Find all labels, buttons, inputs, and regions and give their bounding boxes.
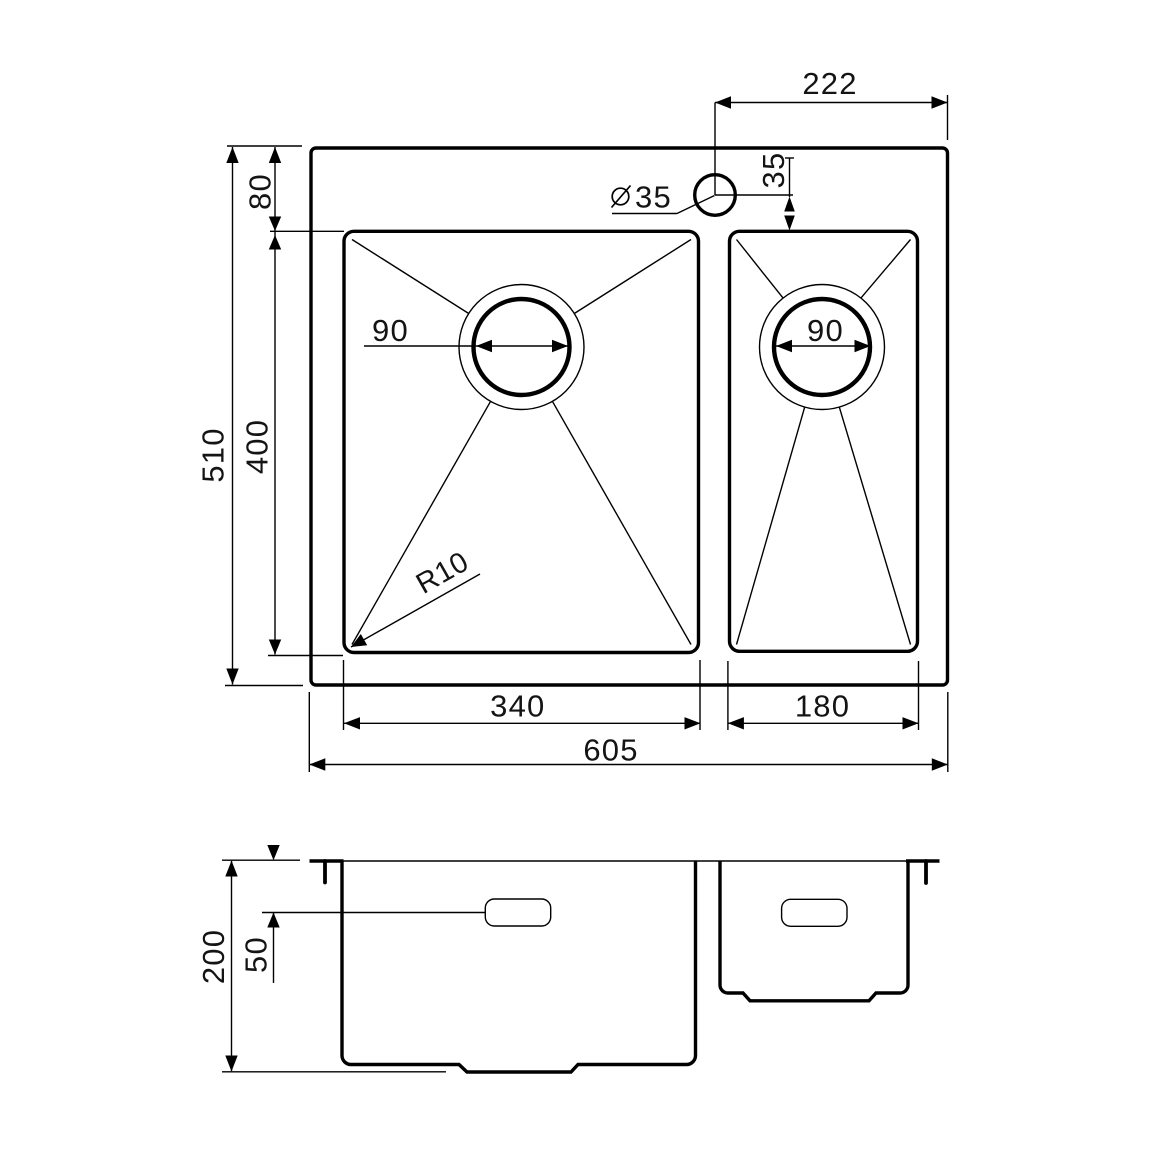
svg-text:80: 80 [242, 173, 277, 210]
svg-text:35: 35 [756, 152, 791, 189]
svg-text:200: 200 [196, 929, 231, 984]
svg-text:50: 50 [238, 936, 273, 973]
svg-text:222: 222 [802, 66, 857, 101]
svg-text:90: 90 [807, 313, 844, 348]
svg-text:90: 90 [372, 313, 409, 348]
svg-text:180: 180 [795, 689, 850, 724]
svg-text:35: 35 [635, 180, 672, 215]
svg-text:605: 605 [583, 733, 638, 768]
svg-text:340: 340 [490, 689, 545, 724]
svg-text:400: 400 [239, 419, 274, 474]
svg-text:510: 510 [195, 427, 230, 482]
